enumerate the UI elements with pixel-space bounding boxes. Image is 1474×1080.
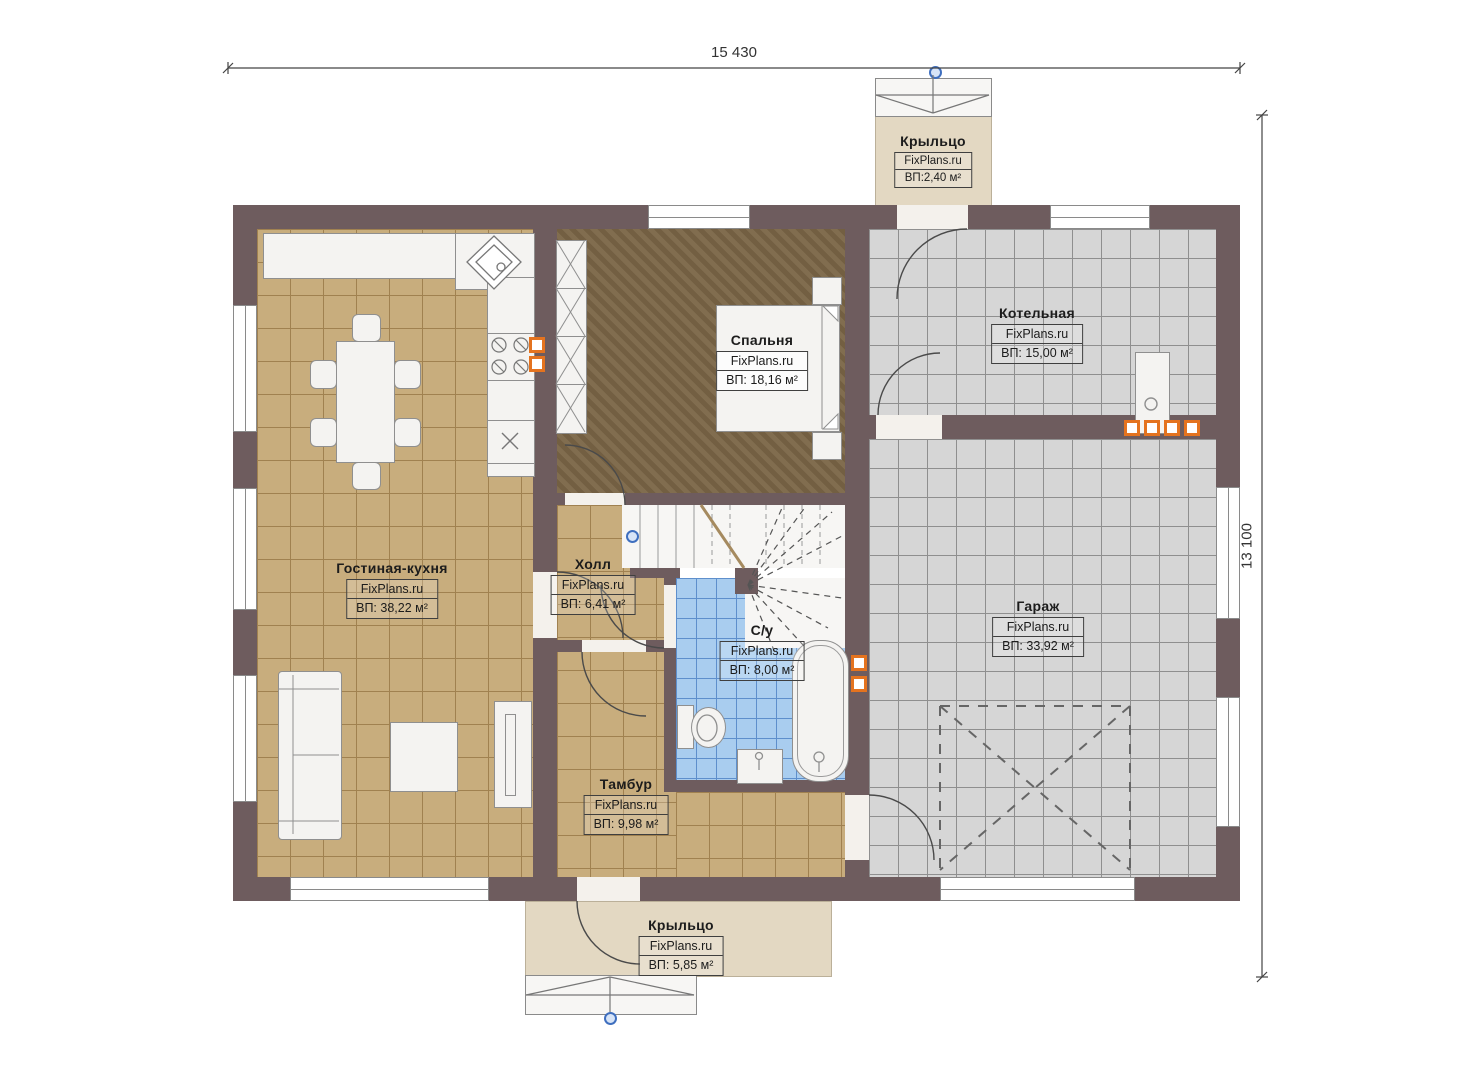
- door-arc-porch-top: [897, 229, 967, 299]
- door-arc-boiler: [878, 353, 940, 415]
- brand-text: FixPlans.ru: [347, 580, 437, 599]
- room-area: ВП: 8,00 м²: [721, 661, 804, 680]
- room-area: ВП: 5,85 м²: [640, 956, 723, 975]
- brand-text: FixPlans.ru: [717, 352, 807, 371]
- room-area: ВП: 33,92 м²: [993, 637, 1083, 656]
- porch-top-roof-lines: [876, 75, 989, 113]
- brand-text: FixPlans.ru: [895, 153, 971, 170]
- bath-fixture-icons: [697, 715, 824, 772]
- kitchen-sink-icon: [467, 236, 521, 289]
- porch-bottom-roof-lines: [526, 977, 694, 1012]
- room-name: Гараж: [1016, 598, 1059, 614]
- sofa-lines: [279, 675, 339, 834]
- dimension-height-label: 13 100: [1239, 523, 1256, 569]
- room-label-porch-top: Крыльцо FixPlans.ru ВП:2,40 м²: [894, 133, 972, 188]
- brand-text: FixPlans.ru: [721, 642, 804, 661]
- stair-treads: [640, 505, 820, 568]
- room-area: ВП: 18,16 м²: [717, 371, 807, 390]
- door-arc-tambour-garage: [869, 795, 934, 860]
- room-name: Холл: [575, 556, 611, 572]
- bed-details: [822, 306, 838, 429]
- dimension-width-label: 15 430: [711, 44, 757, 61]
- floor-plan: 15 430 13 100 Крыльцо FixPlans.ru ВП:2,4…: [0, 0, 1474, 1080]
- room-label-bath: С/у FixPlans.ru ВП: 8,00 м²: [720, 622, 805, 681]
- room-name: Спальня: [731, 332, 794, 348]
- room-label-living: Гостиная-кухня FixPlans.ru ВП: 38,22 м²: [336, 560, 448, 619]
- room-name: Крыльцо: [900, 133, 966, 149]
- room-name: Крыльцо: [648, 917, 714, 933]
- room-label-porch-bottom: Крыльцо FixPlans.ru ВП: 5,85 м²: [639, 917, 724, 976]
- room-name: Тамбур: [600, 776, 653, 792]
- room-label-tambour: Тамбур FixPlans.ru ВП: 9,98 м²: [584, 776, 669, 835]
- stair-break-line: [701, 505, 744, 568]
- brand-text: FixPlans.ru: [585, 796, 668, 815]
- wardrobe-x-icon: [556, 240, 585, 432]
- room-label-bedroom: Спальня FixPlans.ru ВП: 18,16 м²: [716, 332, 808, 391]
- room-area: ВП:2,40 м²: [895, 170, 971, 187]
- room-area: ВП: 9,98 м²: [585, 815, 668, 834]
- door-arc-hall-tambour: [582, 652, 646, 716]
- cabinet-x-icon: [502, 433, 518, 449]
- room-name: Гостиная-кухня: [336, 560, 448, 576]
- brand-text: FixPlans.ru: [993, 618, 1083, 637]
- room-label-boiler: Котельная FixPlans.ru ВП: 15,00 м²: [991, 305, 1083, 364]
- stove-burners-icon: [492, 338, 528, 374]
- door-arc-porch-bottom: [577, 901, 640, 964]
- brand-text: FixPlans.ru: [640, 937, 723, 956]
- garage-parking-cross: [940, 706, 1130, 870]
- door-arc-bedroom: [565, 445, 625, 505]
- room-label-garage: Гараж FixPlans.ru ВП: 33,92 м²: [992, 598, 1084, 657]
- brand-text: FixPlans.ru: [992, 325, 1082, 344]
- room-area: ВП: 38,22 м²: [347, 599, 437, 618]
- room-name: Котельная: [999, 305, 1075, 321]
- brand-text: FixPlans.ru: [552, 576, 635, 595]
- room-area: ВП: 6,41 м²: [552, 595, 635, 614]
- boiler-dial-icon: [1145, 398, 1157, 410]
- room-label-hall: Холл FixPlans.ru ВП: 6,41 м²: [551, 556, 636, 615]
- room-area: ВП: 15,00 м²: [992, 344, 1082, 363]
- room-name: С/у: [751, 622, 774, 638]
- dimension-lines: [223, 62, 1268, 982]
